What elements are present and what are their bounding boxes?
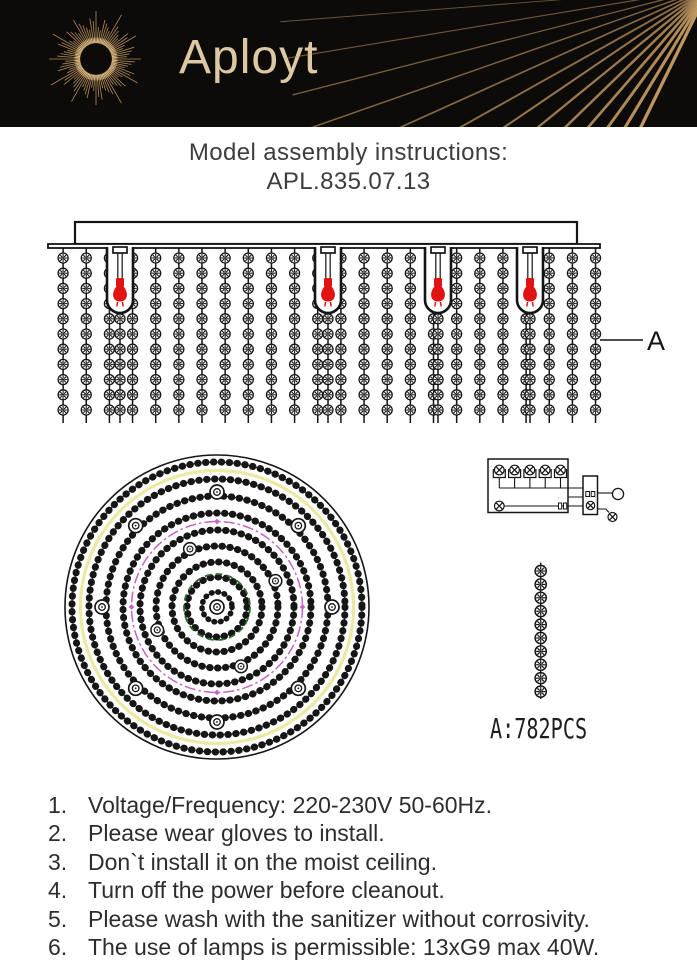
mounting-hole <box>325 600 339 614</box>
item-text: Please wear gloves to install. <box>88 819 693 847</box>
item-text: Turn off the power before cleanout. <box>88 876 693 904</box>
lamp-symbol-icon <box>495 501 505 511</box>
list-item: 5.Please wash with the sanitizer without… <box>48 905 693 933</box>
lamp-symbol-icon <box>525 465 535 475</box>
item-text: Please wash with the sanitizer without c… <box>88 905 693 933</box>
mounting-hole <box>269 575 282 588</box>
item-number: 5. <box>48 905 88 933</box>
list-item: 2.Please wear gloves to install. <box>48 819 693 847</box>
instruction-sheet: Aployt A Model assembly instructions: AP… <box>0 0 697 971</box>
page-title: Model assembly instructions: APL.835.07.… <box>0 138 697 196</box>
mounting-hole <box>210 600 224 614</box>
mounting-hole <box>129 681 143 695</box>
mounting-hole <box>129 519 143 533</box>
mounting-hole <box>184 543 197 556</box>
list-item: 1.Voltage/Frequency: 220-230V 50-60Hz. <box>48 791 693 819</box>
plan-view-drawing <box>65 455 369 759</box>
list-item: 4.Turn off the power before cleanout. <box>48 876 693 904</box>
lamp-symbol-icon <box>540 465 550 475</box>
item-number: 1. <box>48 791 88 819</box>
lamp-symbol-icon <box>495 465 505 475</box>
lamp-symbol-icon <box>510 465 520 475</box>
lamp-symbol-icon <box>608 513 617 522</box>
mounting-hole <box>235 660 248 673</box>
strand-detail-drawing <box>535 563 546 700</box>
mounting-hole <box>291 681 305 695</box>
item-text: Voltage/Frequency: 220-230V 50-60Hz. <box>88 791 693 819</box>
strand-count-label: A:782PCS <box>490 712 587 745</box>
item-text: Don`t install it on the moist ceiling. <box>88 848 693 876</box>
item-number: 4. <box>48 876 88 904</box>
junction-circle <box>612 488 623 499</box>
mounting-hole <box>210 485 224 499</box>
starburst-logo-icon <box>49 11 141 105</box>
mounting-hole <box>210 715 224 729</box>
lamp-symbol-icon <box>556 465 566 475</box>
side-view-drawing: A <box>48 222 665 423</box>
item-text: The use of lamps is permissible: 13xG9 m… <box>88 933 693 961</box>
part-label: A <box>647 326 665 356</box>
instruction-list: 1.Voltage/Frequency: 220-230V 50-60Hz. 2… <box>48 791 693 961</box>
list-item: 3.Don`t install it on the moist ceiling. <box>48 848 693 876</box>
item-number: 6. <box>48 933 88 961</box>
part-callout: A <box>600 326 665 356</box>
title-line2: APL.835.07.13 <box>0 167 697 196</box>
canopy <box>48 222 600 248</box>
title-line1: Model assembly instructions: <box>0 138 697 167</box>
mounting-hole <box>95 600 109 614</box>
item-number: 2. <box>48 819 88 847</box>
wiring-diagram <box>488 459 624 522</box>
item-number: 3. <box>48 848 88 876</box>
list-item: 6.The use of lamps is permissible: 13xG9… <box>48 933 693 961</box>
mounting-hole <box>151 624 164 637</box>
lamp-symbol-icon <box>586 501 594 509</box>
mounting-hole <box>291 519 305 533</box>
